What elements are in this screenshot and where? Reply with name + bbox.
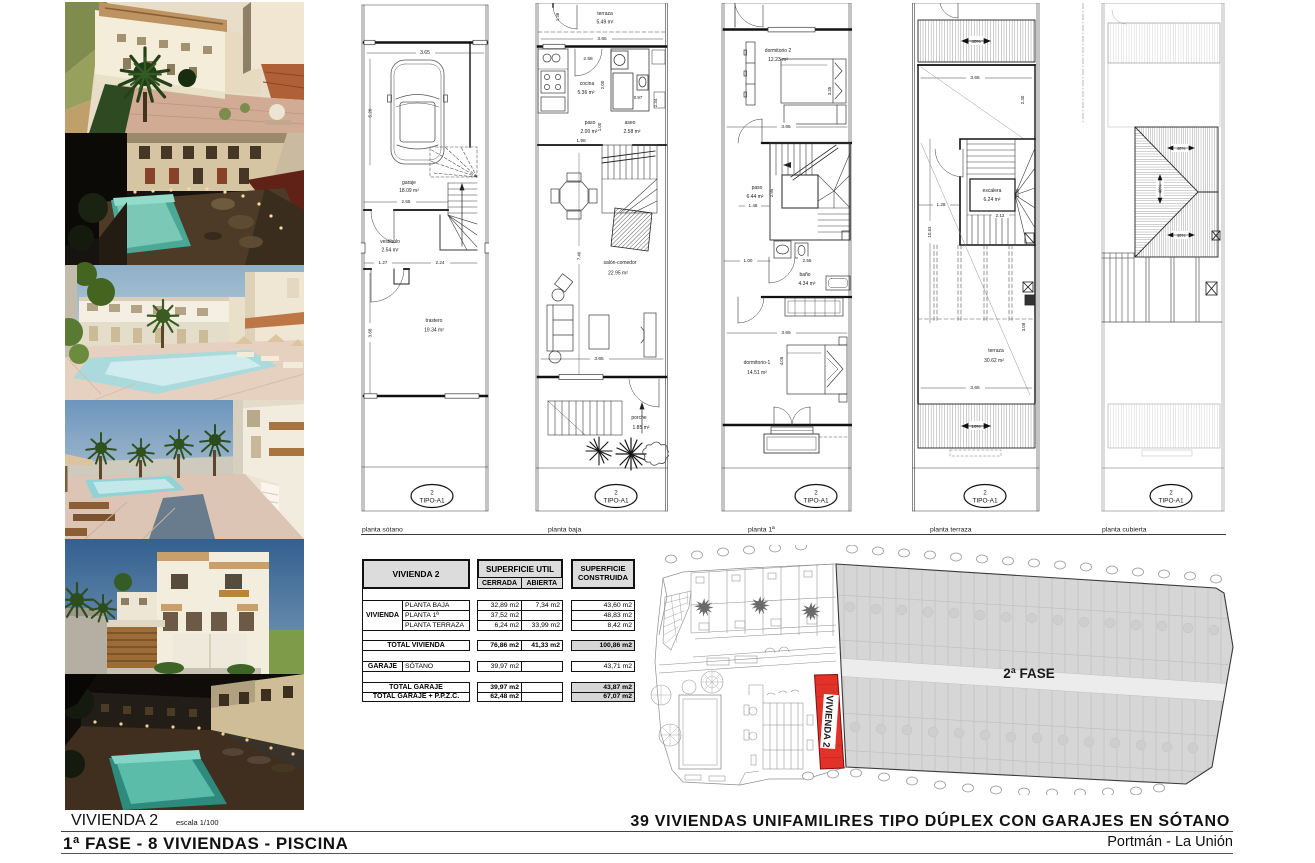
svg-text:10.63: 10.63: [927, 226, 932, 238]
svg-text:3.65: 3.65: [420, 50, 430, 56]
svg-text:2.58 m²: 2.58 m²: [624, 129, 641, 135]
svg-text:2.55: 2.55: [402, 199, 411, 204]
svg-text:4.05: 4.05: [779, 356, 784, 365]
svg-text:garaje: garaje: [402, 180, 416, 186]
svg-text:2.34: 2.34: [653, 98, 658, 107]
svg-text:3.35: 3.35: [827, 86, 832, 95]
svg-text:6.24 m²: 6.24 m²: [984, 197, 1001, 203]
svg-text:1.48: 1.48: [749, 203, 758, 208]
svg-text:3.65: 3.65: [594, 356, 604, 362]
svg-text:dormitorio-1: dormitorio-1: [744, 360, 771, 366]
svg-text:3.08: 3.08: [1021, 322, 1026, 331]
svg-text:terraza: terraza: [597, 11, 613, 17]
svg-text:12.23 m²: 12.23 m²: [768, 57, 788, 63]
svg-text:paso: paso: [752, 185, 763, 191]
svg-text:40%: 40%: [971, 39, 980, 44]
svg-text:TIPO-A1: TIPO-A1: [603, 498, 629, 505]
svg-text:2.30: 2.30: [1020, 95, 1025, 104]
svg-text:1.38: 1.38: [555, 12, 560, 21]
svg-text:1.00: 1.00: [597, 122, 602, 131]
svg-text:planta 1ª: planta 1ª: [748, 527, 775, 534]
svg-text:2.58: 2.58: [583, 56, 593, 62]
svg-text:2.96: 2.96: [1015, 188, 1020, 197]
svg-text:30.62 m²: 30.62 m²: [984, 358, 1004, 364]
svg-text:3.65: 3.65: [781, 124, 791, 130]
svg-text:TIPO-A1: TIPO-A1: [803, 498, 829, 505]
svg-text:2.54 m²: 2.54 m²: [382, 248, 399, 254]
svg-text:salón-comedor: salón-comedor: [603, 260, 636, 266]
svg-text:TIPO-A1: TIPO-A1: [419, 498, 445, 505]
svg-text:22.95 m²: 22.95 m²: [608, 271, 628, 277]
svg-text:2: 2: [430, 491, 434, 497]
svg-text:vestibulo: vestibulo: [380, 239, 400, 245]
svg-text:2.00: 2.00: [600, 80, 605, 89]
svg-text:2ª FASE: 2ª FASE: [1003, 666, 1055, 681]
svg-text:TIPO-A1: TIPO-A1: [1158, 498, 1184, 505]
svg-text:5.36 m²: 5.36 m²: [578, 90, 595, 96]
svg-text:planta baja: planta baja: [548, 527, 581, 534]
svg-text:3.65: 3.65: [970, 75, 980, 81]
svg-text:3.65: 3.65: [970, 385, 980, 391]
svg-text:2.00 m²: 2.00 m²: [581, 129, 598, 135]
svg-text:cocina: cocina: [580, 81, 595, 87]
svg-text:planta sótano: planta sótano: [362, 527, 403, 534]
svg-text:40%: 40%: [1177, 233, 1186, 238]
svg-text:1.00: 1.00: [744, 258, 753, 263]
svg-text:4.34 m²: 4.34 m²: [799, 281, 816, 287]
svg-text:3.65: 3.65: [597, 36, 607, 42]
svg-text:3.68: 3.68: [368, 328, 373, 337]
svg-text:1.85 m²: 1.85 m²: [633, 425, 650, 431]
svg-text:dormitorio 2: dormitorio 2: [765, 48, 792, 54]
svg-text:TIPO-A1: TIPO-A1: [972, 498, 998, 505]
svg-text:5.49 m²: 5.49 m²: [597, 20, 614, 26]
svg-text:terraza: terraza: [988, 348, 1004, 354]
svg-text:14.51 m²: 14.51 m²: [747, 370, 767, 376]
svg-text:planta cubierta: planta cubierta: [1102, 527, 1147, 534]
svg-text:40%: 40%: [1158, 185, 1163, 194]
svg-text:40%: 40%: [1177, 146, 1186, 151]
svg-text:0.97: 0.97: [634, 95, 643, 100]
svg-text:7.40: 7.40: [577, 251, 582, 260]
svg-text:19.34 m²: 19.34 m²: [424, 328, 444, 334]
svg-text:1.28: 1.28: [937, 202, 946, 207]
svg-text:2: 2: [983, 491, 987, 497]
svg-text:1.27: 1.27: [379, 260, 388, 265]
svg-text:porche: porche: [631, 415, 647, 421]
svg-text:trastero: trastero: [426, 318, 443, 324]
svg-text:escalera: escalera: [983, 188, 1002, 194]
svg-text:5.26: 5.26: [368, 108, 373, 117]
svg-text:2: 2: [614, 491, 618, 497]
svg-text:paso: paso: [585, 120, 596, 126]
svg-text:aseo: aseo: [625, 120, 636, 126]
svg-text:2: 2: [1169, 491, 1173, 497]
svg-text:10%: 10%: [971, 424, 980, 429]
svg-text:2.24: 2.24: [436, 260, 445, 265]
svg-text:2: 2: [814, 491, 818, 497]
svg-text:baño: baño: [799, 272, 810, 278]
svg-text:2.55: 2.55: [803, 258, 812, 263]
svg-text:3.65: 3.65: [781, 330, 791, 336]
svg-text:2.12: 2.12: [996, 213, 1005, 218]
svg-text:6.44 m²: 6.44 m²: [747, 194, 764, 200]
svg-text:planta terraza: planta terraza: [930, 527, 972, 534]
svg-text:18.09 m²: 18.09 m²: [399, 188, 419, 194]
svg-text:1.98: 1.98: [576, 138, 586, 144]
